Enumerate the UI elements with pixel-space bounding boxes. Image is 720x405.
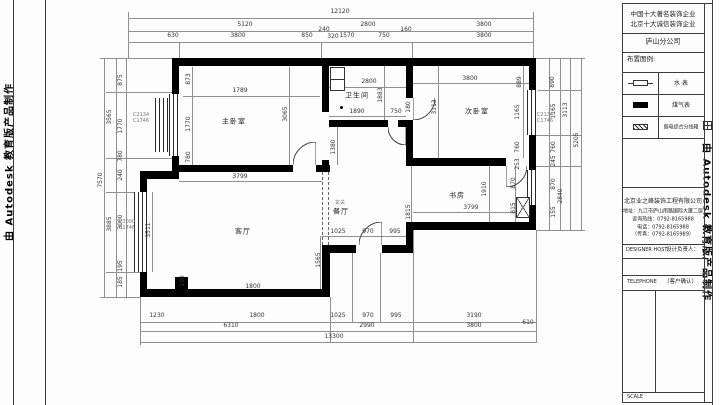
- dimension-line: [384, 66, 385, 120]
- dim-label: 13300: [324, 334, 343, 340]
- wall-segment: [406, 66, 413, 98]
- room-label: 客厅: [235, 229, 251, 236]
- dimension-line: [126, 58, 127, 297]
- room-label: 书房: [449, 193, 465, 200]
- wall-segment: [529, 205, 536, 230]
- wall-segment: [329, 120, 388, 127]
- floor-plan: 1212051202800380063038008502403201570750…: [0, 0, 720, 405]
- dim-label: 180: [406, 101, 412, 112]
- frame-line: [622, 392, 704, 393]
- dashed-opening-line: [328, 172, 329, 245]
- dim-label: 870: [511, 177, 517, 188]
- dim-label: 6310: [223, 323, 238, 329]
- company-name: 北京业之峰装饰工程有限公司: [624, 199, 702, 205]
- dim-label: 780: [118, 150, 124, 161]
- dim-label: 2990: [359, 323, 374, 329]
- dimension-line: [179, 42, 180, 58]
- dim-label: 3800: [462, 76, 477, 82]
- annotation-label: C1746: [537, 118, 553, 124]
- dim-label: 245: [551, 155, 557, 166]
- dimension-line: [533, 12, 534, 58]
- dim-label: 1230: [149, 313, 164, 319]
- dimension-line: [536, 166, 581, 167]
- dimension-line: [536, 230, 537, 343]
- dim-label: 1890: [349, 109, 364, 115]
- frame-line: [45, 0, 46, 405]
- dim-label: 7570: [98, 172, 104, 187]
- company-address: 地址：九江市庐山南路国际大厦二层: [623, 210, 703, 215]
- wall-segment: [330, 245, 356, 253]
- door-swing-arc: [293, 142, 316, 165]
- wall-segment: [529, 66, 536, 90]
- dimension-line: [412, 42, 413, 58]
- frame-line: [622, 116, 704, 117]
- wall-segment: [413, 158, 506, 166]
- wall-segment: [322, 58, 329, 112]
- dim-label: 185: [118, 276, 124, 287]
- dim-label: 1025: [330, 313, 345, 319]
- dimension-line: [581, 58, 582, 231]
- dim-label: 5205: [574, 132, 580, 147]
- company-fax: （传真：0792-8165989）: [632, 233, 694, 238]
- dimension-line: [183, 96, 320, 97]
- dim-label: 3885: [107, 216, 113, 231]
- wall-segment: [529, 135, 536, 170]
- dim-label: 155: [551, 206, 557, 217]
- room-label: 主卧室: [222, 119, 246, 126]
- dim-label: 1770: [186, 116, 192, 131]
- frame-line: [655, 290, 656, 392]
- dimension-line: [106, 272, 140, 273]
- dimension-line: [128, 18, 533, 19]
- frame-line: [622, 244, 704, 245]
- room-label: 餐厅: [333, 209, 349, 216]
- scale-label: SCALE: [627, 395, 643, 400]
- dim-label: 3565: [107, 109, 113, 124]
- dimension-line: [104, 58, 105, 297]
- wall-segment: [406, 222, 536, 230]
- dim-label: 970: [362, 313, 373, 319]
- legend-label-lowvoltage-box: 弱电综合分线箱: [663, 126, 698, 131]
- dimension-line: [106, 158, 172, 159]
- dim-label: 3190: [466, 313, 481, 319]
- dim-label: 1565: [316, 252, 322, 267]
- dim-label: 3799: [232, 174, 247, 180]
- dim-label: 750: [378, 33, 389, 39]
- dimension-line: [179, 181, 322, 182]
- client-confirm-label: （客户确认）: [664, 280, 697, 286]
- dim-label: 875: [118, 74, 124, 85]
- dimension-line: [438, 66, 439, 158]
- dim-label: 850: [301, 33, 312, 39]
- dim-label: 160: [400, 27, 411, 33]
- legend-symbol-hatch: [633, 124, 648, 130]
- dim-label: 760: [515, 141, 521, 152]
- dimension-line: [536, 58, 585, 59]
- window: [169, 94, 180, 156]
- dimension-line: [523, 66, 524, 158]
- frame-line: [704, 3, 705, 403]
- legend-symbol-window: [633, 80, 648, 86]
- dimension-line: [413, 230, 414, 343]
- legend-label-water-meter: 水 表: [674, 81, 688, 87]
- dimension-line: [570, 58, 571, 231]
- designer-field-en: DESIGNER HOST: [626, 248, 667, 253]
- dimension-line: [289, 67, 290, 165]
- dim-label: 3511: [146, 222, 152, 237]
- dim-label: 1800: [249, 313, 264, 319]
- dim-label: 780: [186, 151, 192, 162]
- dim-label: 1570: [339, 33, 354, 39]
- fixture-cells: [330, 67, 345, 91]
- company-honor-line1: 中国十大著名装饰企业: [631, 11, 696, 18]
- dim-label: 995: [390, 313, 401, 319]
- company-hotline: 咨询热线：0792-8165988: [632, 218, 694, 223]
- dim-label: 630: [167, 33, 178, 39]
- designer-field-cn: 设计负责人：: [666, 248, 699, 254]
- dimension-line: [329, 116, 406, 117]
- dimension-line: [140, 297, 141, 345]
- dim-label: 3799: [463, 205, 478, 211]
- dimension-line: [413, 83, 529, 84]
- dim-label: 1770: [118, 118, 124, 133]
- dimension-line: [140, 331, 536, 332]
- annotation-label: C1746: [133, 118, 149, 124]
- dim-label: 889: [517, 76, 523, 87]
- dim-label: 1883: [378, 87, 384, 102]
- frame-line: [13, 0, 14, 405]
- room-label: 次卧室: [465, 109, 489, 116]
- company-phone: 电话：0792-8165988: [637, 226, 689, 231]
- dim-label: 995: [389, 229, 400, 235]
- legend-title: 布置图例:: [627, 56, 655, 63]
- dimension-line: [489, 166, 490, 222]
- dimension-line: [560, 58, 561, 231]
- dim-label: 2800: [360, 22, 375, 28]
- dim-label: 1025: [330, 229, 345, 235]
- frame-line: [648, 83, 653, 84]
- legend-label-gas-meter: 煤气表: [672, 103, 690, 109]
- dimension-line: [380, 253, 381, 323]
- dim-label: 3800: [476, 33, 491, 39]
- sheet-grid-icon: [703, 121, 712, 130]
- dim-label: 5120: [237, 22, 252, 28]
- legend-symbol-solid: [633, 102, 648, 108]
- wall-segment: [172, 66, 179, 95]
- dim-label: 2800: [361, 79, 376, 85]
- dimension-line: [128, 12, 129, 58]
- dim-label: 3800: [230, 33, 245, 39]
- dimension-line: [140, 342, 536, 343]
- dim-label: 190: [180, 275, 186, 286]
- frame-line: [622, 290, 704, 291]
- wall-segment: [140, 171, 179, 179]
- dim-label: 1165: [515, 104, 521, 119]
- dim-label: 1789: [232, 88, 247, 94]
- dimension-line: [100, 297, 140, 298]
- door-swing-arc: [388, 127, 406, 145]
- dim-label: 890: [550, 76, 556, 87]
- dim-label: 3800: [466, 323, 481, 329]
- wall-segment: [172, 165, 293, 172]
- cad-sheet: 由 Autodesk 教育版产品制作 由 Autodesk 教育版产品制作 12…: [0, 0, 720, 405]
- dimension-line: [536, 90, 581, 91]
- frame-line: [622, 33, 704, 34]
- dimension-line: [192, 67, 193, 165]
- dim-label: 12120: [330, 9, 349, 15]
- dimension-line: [321, 42, 322, 58]
- window: [155, 98, 168, 152]
- frame-line: [622, 187, 704, 188]
- frame-line: [712, 0, 713, 405]
- dim-label: 253: [515, 158, 521, 169]
- room-label: 卫生间: [345, 93, 369, 100]
- wall-segment: [140, 289, 330, 297]
- dim-label: 970: [362, 229, 373, 235]
- dim-label: 760: [551, 141, 557, 152]
- frame-line: [622, 3, 623, 403]
- wall-segment: [172, 58, 536, 66]
- dim-label: 240: [118, 169, 124, 180]
- frame-line: [622, 72, 704, 73]
- frame-line: [622, 258, 704, 259]
- wall-segment: [316, 165, 330, 172]
- dimension-line: [337, 127, 338, 165]
- annotation-label: 玄关: [335, 200, 345, 206]
- dim-label: 750: [390, 109, 401, 115]
- frame-line: [622, 275, 704, 276]
- branch-name: 庐山分公司: [646, 39, 681, 46]
- wall-segment: [322, 245, 330, 297]
- dimension-line: [128, 42, 533, 43]
- dimension-line: [100, 58, 172, 59]
- dimension-line: [128, 31, 533, 32]
- dim-label: 873: [186, 73, 192, 84]
- wall-segment: [406, 120, 413, 166]
- dimension-line: [106, 92, 172, 93]
- frame-line: [658, 72, 659, 138]
- frame-line: [622, 138, 704, 139]
- frame-line: [622, 94, 704, 95]
- client-field-en: TELEPHONE: [627, 280, 657, 285]
- dim-label: 1380: [331, 139, 337, 154]
- dim-label: 3113: [563, 102, 569, 117]
- fixture-cross: [516, 197, 530, 218]
- wall-segment: [140, 179, 147, 192]
- dim-label: 1815: [406, 204, 412, 219]
- dimension-line: [152, 192, 153, 272]
- dim-label: 1800: [245, 284, 260, 290]
- dim-label: 3800: [476, 22, 491, 28]
- dim-label: 815: [511, 202, 517, 213]
- dim-label: 2840: [558, 188, 564, 203]
- dimension-line: [352, 253, 353, 323]
- dimension-line: [536, 230, 585, 231]
- company-honor-line2: 北京十大诚信装饰企业: [631, 21, 696, 28]
- frame-line: [622, 3, 712, 4]
- dim-label: 3113: [432, 99, 438, 114]
- dim-label: 610: [522, 320, 533, 326]
- wall-segment: [398, 120, 406, 127]
- frame-line: [622, 52, 704, 53]
- frame-line: [622, 402, 712, 403]
- dim-label: 1910: [482, 181, 488, 196]
- dim-label: 320: [327, 34, 338, 40]
- light-point-icon: [340, 106, 343, 109]
- dim-label: 195: [118, 260, 124, 271]
- dim-label: 3065: [283, 106, 289, 121]
- annotation-label: C1746: [119, 225, 135, 231]
- dashed-opening-line: [322, 172, 323, 245]
